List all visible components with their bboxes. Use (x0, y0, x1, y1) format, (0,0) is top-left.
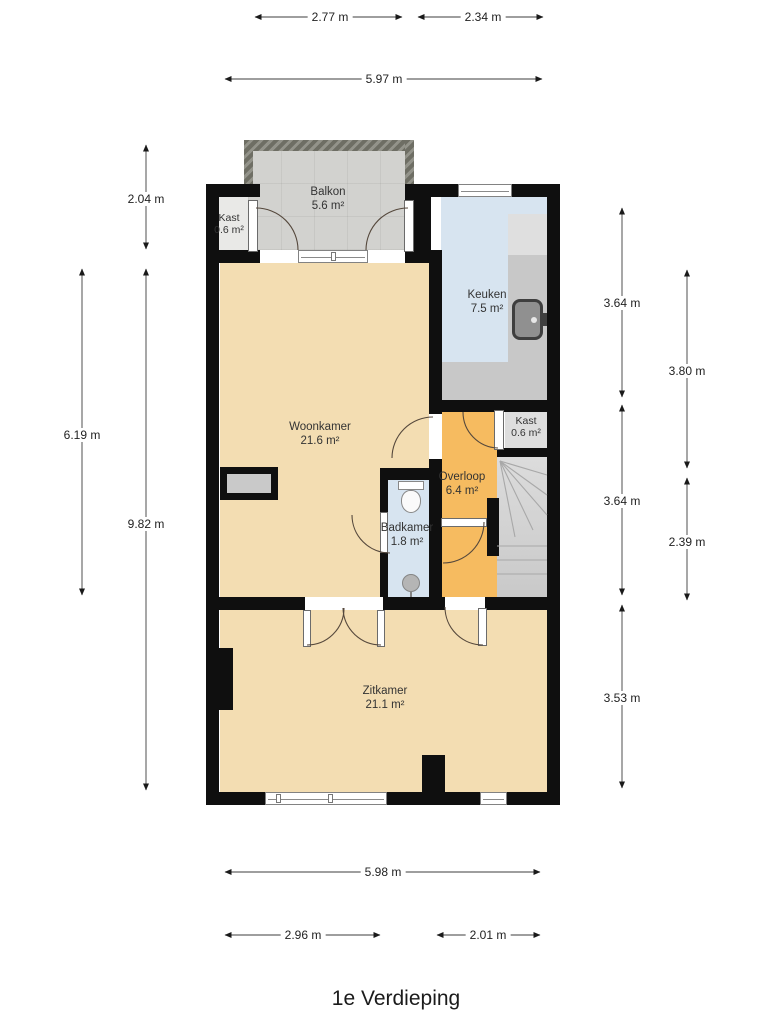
dimension-label: 2.01 m (466, 928, 511, 942)
dimension-label: 5.98 m (361, 865, 406, 879)
room-label-zitkamer: Zitkamer 21.1 m² (363, 684, 408, 712)
room-area: 21.6 m² (300, 435, 339, 447)
wall-stub (422, 755, 445, 792)
wall (383, 597, 445, 610)
room-area: 21.1 m² (365, 699, 404, 711)
room-name: Overloop (439, 471, 486, 483)
wall (429, 250, 442, 415)
door-panel (494, 410, 504, 450)
dimension-label: 2.34 m (461, 10, 506, 24)
window (480, 792, 507, 805)
floor-plan: 2.77 m 2.34 m 5.97 m 2.04 m 6.19 m 9.82 … (0, 0, 768, 1024)
room-area: 0.6 m² (511, 427, 541, 439)
dimension-label: 3.64 m (600, 296, 645, 310)
dimension-label: 5.97 m (362, 72, 407, 86)
window (458, 184, 512, 197)
balcony-railing-right (405, 140, 414, 190)
plan-title: 1e Verdieping (332, 987, 460, 1011)
dimension-label: 2.39 m (665, 535, 710, 549)
toilet-bowl (401, 490, 421, 513)
room-name: Zitkamer (363, 685, 408, 697)
wall (485, 597, 560, 610)
wall (380, 480, 388, 512)
room-area: 6.4 m² (446, 485, 479, 497)
window (265, 792, 387, 805)
room-name: Badkamer (381, 522, 433, 534)
kitchen-counter-top (508, 214, 547, 255)
room-name: Keuken (467, 289, 506, 301)
toilet-tank (398, 481, 424, 490)
door-panel (478, 608, 487, 646)
window-mullion (331, 252, 336, 261)
wall (512, 184, 560, 197)
door-panel (441, 518, 487, 527)
shower-drain (402, 574, 420, 592)
wall (547, 184, 560, 805)
wall (380, 553, 388, 597)
faucet-icon (531, 317, 537, 323)
room-label-balkon: Balkon 5.6 m² (310, 185, 345, 213)
chimney-breast (209, 648, 233, 710)
dimension-label: 2.77 m (308, 10, 353, 24)
room-label-badkamer: Badkamer 1.8 m² (381, 521, 433, 549)
door-panel (248, 200, 258, 252)
wall (380, 468, 442, 480)
room-area: 0.6 m² (214, 224, 244, 236)
wall (387, 792, 480, 805)
window-mullion (328, 794, 333, 803)
door-panel (404, 200, 414, 252)
dimension-label: 2.96 m (281, 928, 326, 942)
balcony-railing-left (244, 140, 253, 190)
room-name: Kast (515, 415, 536, 427)
kitchen-sink (512, 299, 543, 340)
room-area: 7.5 m² (471, 303, 504, 315)
dimension-label: 6.19 m (60, 428, 105, 442)
dimension-label: 2.04 m (124, 192, 169, 206)
window-mullion (276, 794, 281, 803)
balcony-railing-top (244, 140, 414, 151)
room-name: Woonkamer (289, 421, 351, 433)
dimension-label: 3.80 m (665, 364, 710, 378)
wall (405, 184, 458, 197)
window (298, 250, 368, 263)
room-area: 5.6 m² (312, 200, 345, 212)
chimney-inset (227, 474, 271, 493)
wall (487, 498, 499, 556)
door-opening (429, 414, 442, 459)
wall (206, 250, 219, 805)
room-label-kast-balkon: Kast 0.6 m² (214, 212, 244, 236)
dimension-label: 3.53 m (600, 691, 645, 705)
kitchen-counter-bottom (441, 362, 547, 400)
dimension-label: 3.64 m (600, 494, 645, 508)
room-label-woonkamer: Woonkamer 21.6 m² (289, 420, 351, 448)
room-label-overloop: Overloop 6.4 m² (439, 470, 486, 498)
room-area: 1.8 m² (391, 536, 424, 548)
room-name: Balkon (310, 186, 345, 198)
staircase (497, 457, 547, 597)
wall (497, 448, 560, 457)
room-label-keuken: Keuken 7.5 m² (467, 288, 506, 316)
wall (206, 792, 265, 805)
room-name: Kast (218, 212, 239, 224)
door-panel (303, 610, 311, 647)
dimension-label: 9.82 m (124, 517, 169, 531)
room-label-kast-overloop: Kast 0.6 m² (511, 415, 541, 439)
door-panel (377, 610, 385, 647)
wall (206, 597, 305, 610)
